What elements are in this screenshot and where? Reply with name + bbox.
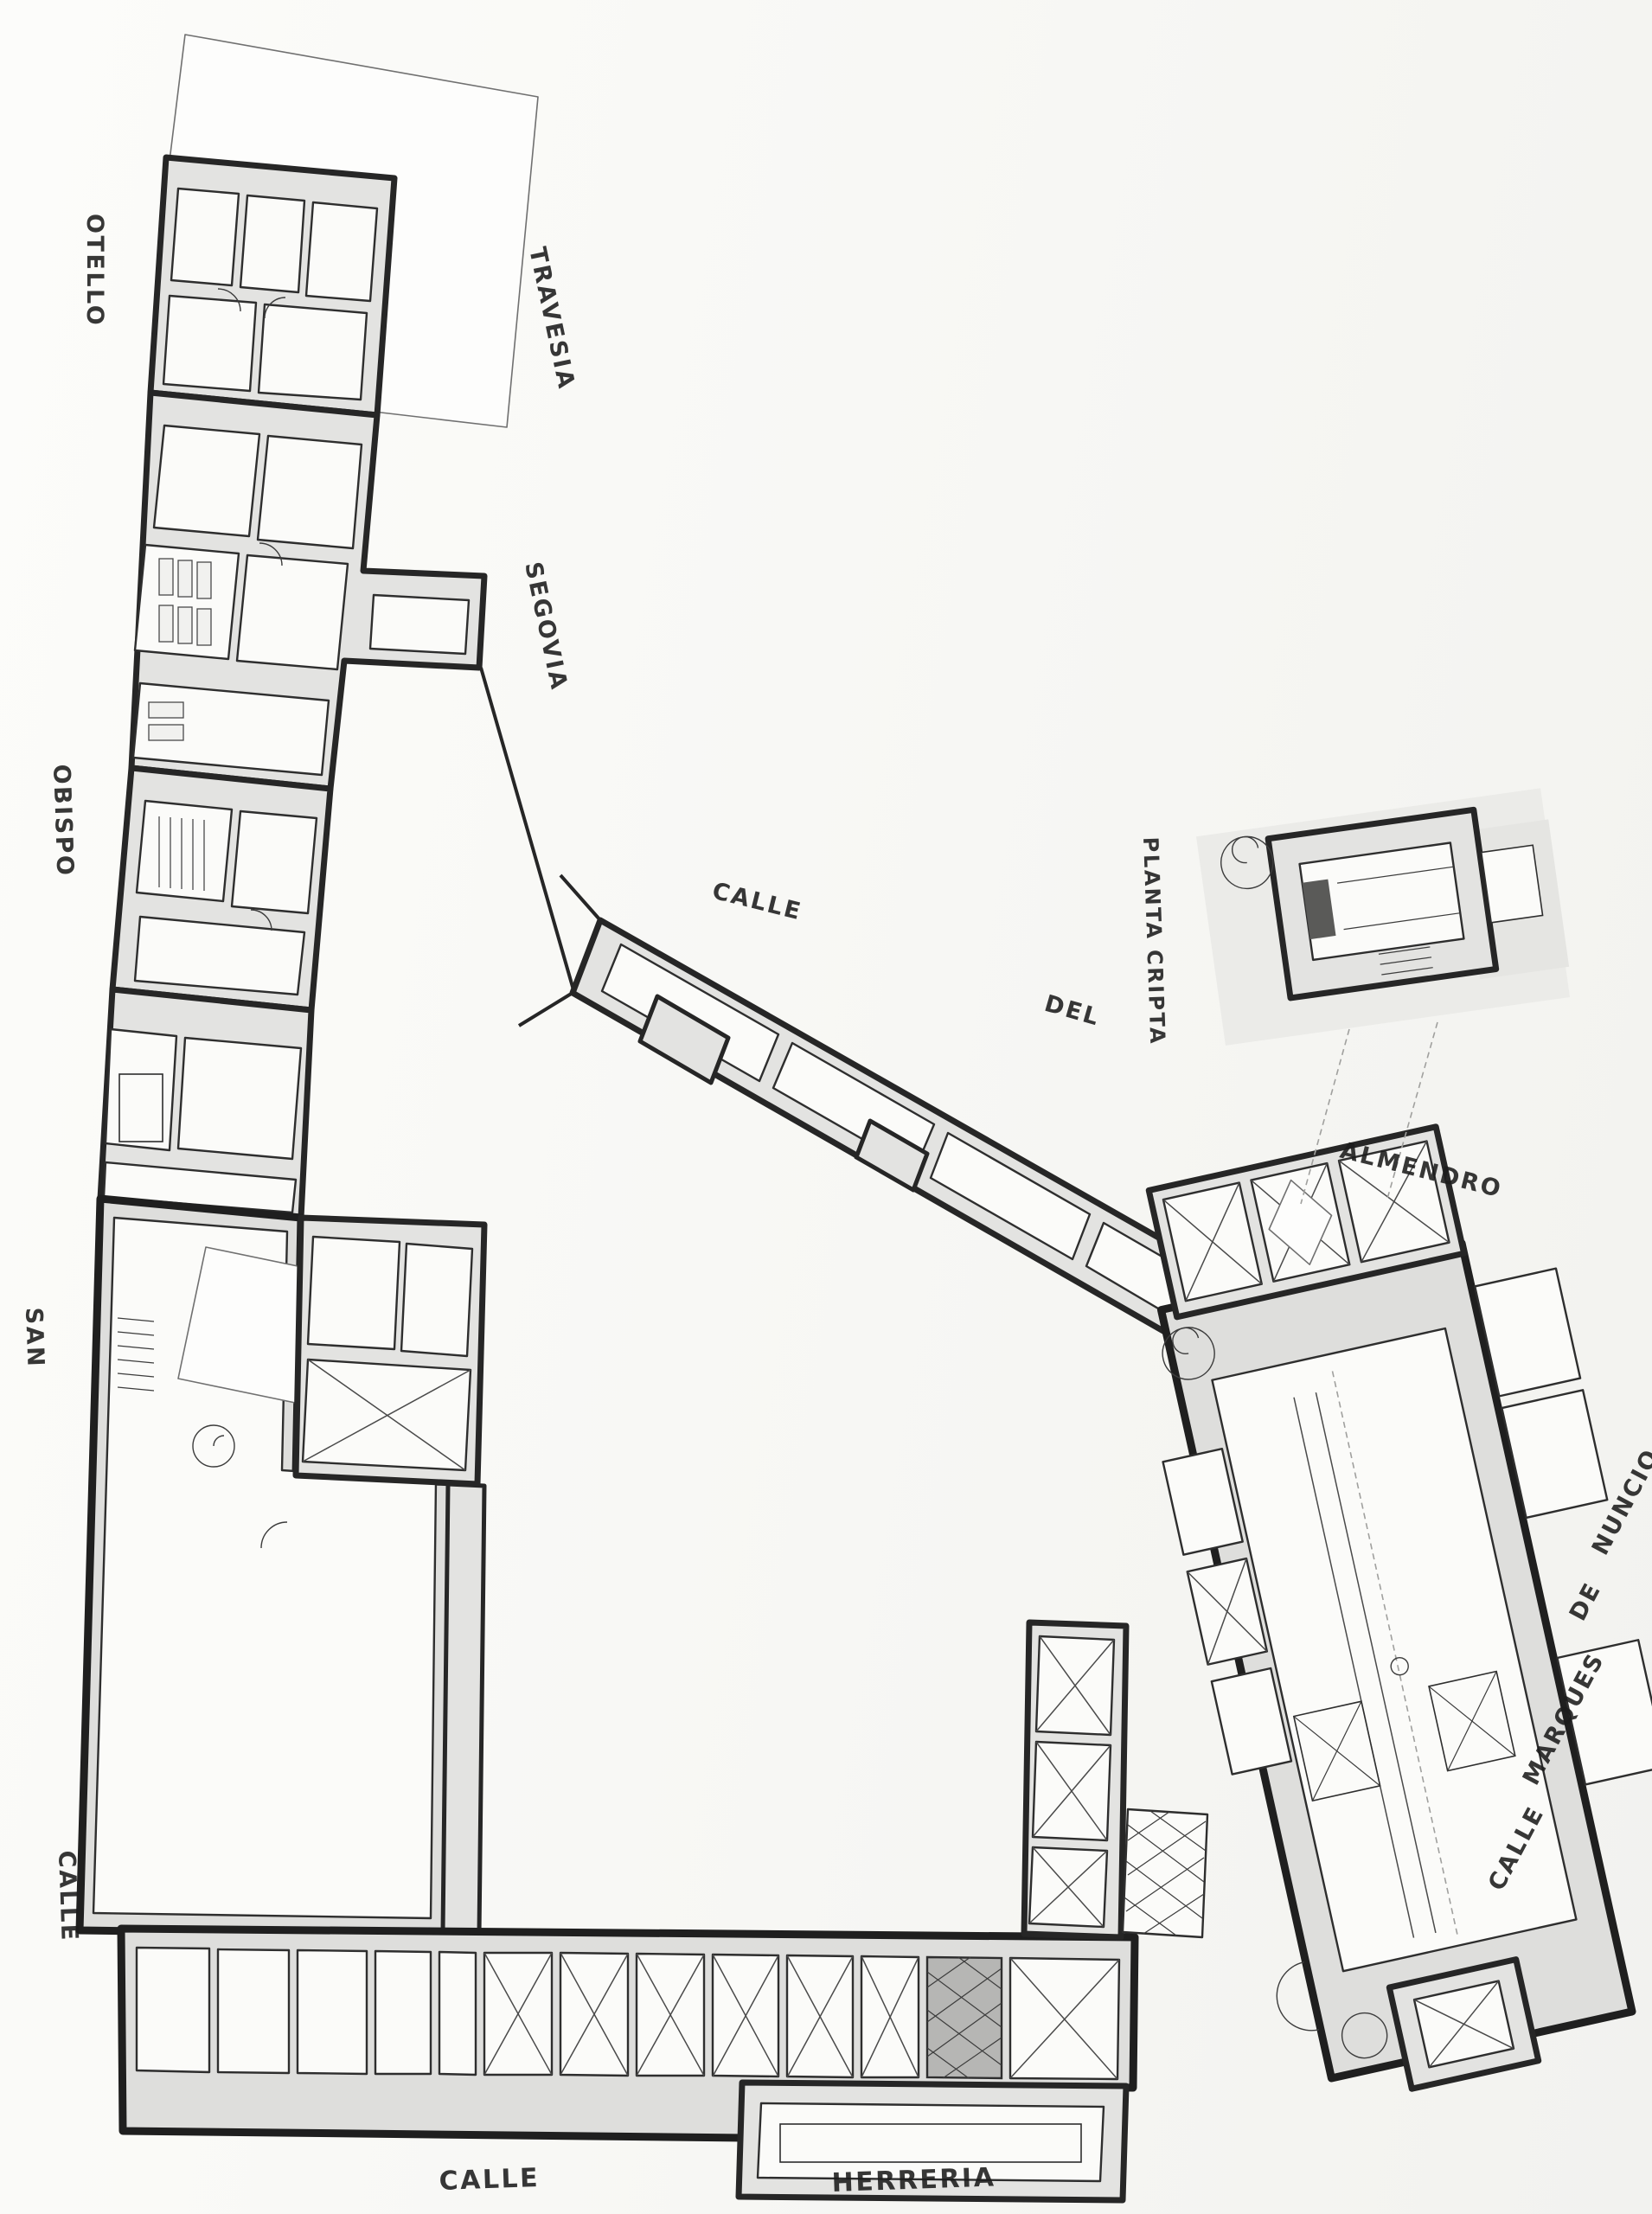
vault-bay [1010,1958,1119,2079]
street-label-del: DEL [1041,990,1104,1032]
street-label-obispo: OBISPO [48,764,79,878]
street-label-segovia: SEGOVIA [519,560,573,694]
street-label-calle-mid: CALLE [709,878,804,926]
vault-column [1024,1622,1207,1937]
hatched-bay [927,1957,1002,2078]
bottom-wing [121,1929,1135,2200]
left-wing-top-block [150,157,394,415]
inset-title-planta-cripta: PLANTA CRIPTA [1138,836,1169,1046]
diamond-hatch-bay [1123,1809,1207,1937]
vault-bay [787,1955,853,2077]
left-wing-cells-block [100,989,311,1218]
bed-symbol [119,1074,163,1142]
vault-bay [861,1956,919,2077]
vault-bay [484,1953,552,2075]
vault-bay [560,1953,628,2076]
vault-bay [637,1954,704,2076]
crypt-inset [1196,788,1573,1046]
vault-bay [713,1955,778,2076]
left-wing-lower-mid-block [112,768,330,1010]
vault-bay [1036,1636,1114,1735]
street-label-travesia: TRAVESIA [523,245,579,393]
floor-plan-drawing: OTELLO TRAVESIA SEGOVIA OBISPO SAN CALLE… [0,0,1652,2214]
street-label-san: SAN [20,1307,48,1368]
floor-plan-sheet: OTELLO TRAVESIA SEGOVIA OBISPO SAN CALLE… [0,0,1652,2214]
left-wing-mid-block [131,393,484,789]
courtyard-wall [481,668,574,993]
street-label-top-left: OTELLO [81,214,108,327]
street-label-calle-left: CALLE [53,1850,83,1942]
vault-bay [1029,1847,1107,1927]
street-label-herreria: HERRERIA [831,2162,996,2198]
street-label-calle-bottom: CALLE [439,2163,541,2197]
street-label-de-right: DE [1565,1577,1607,1625]
vault-bay [1033,1742,1111,1840]
